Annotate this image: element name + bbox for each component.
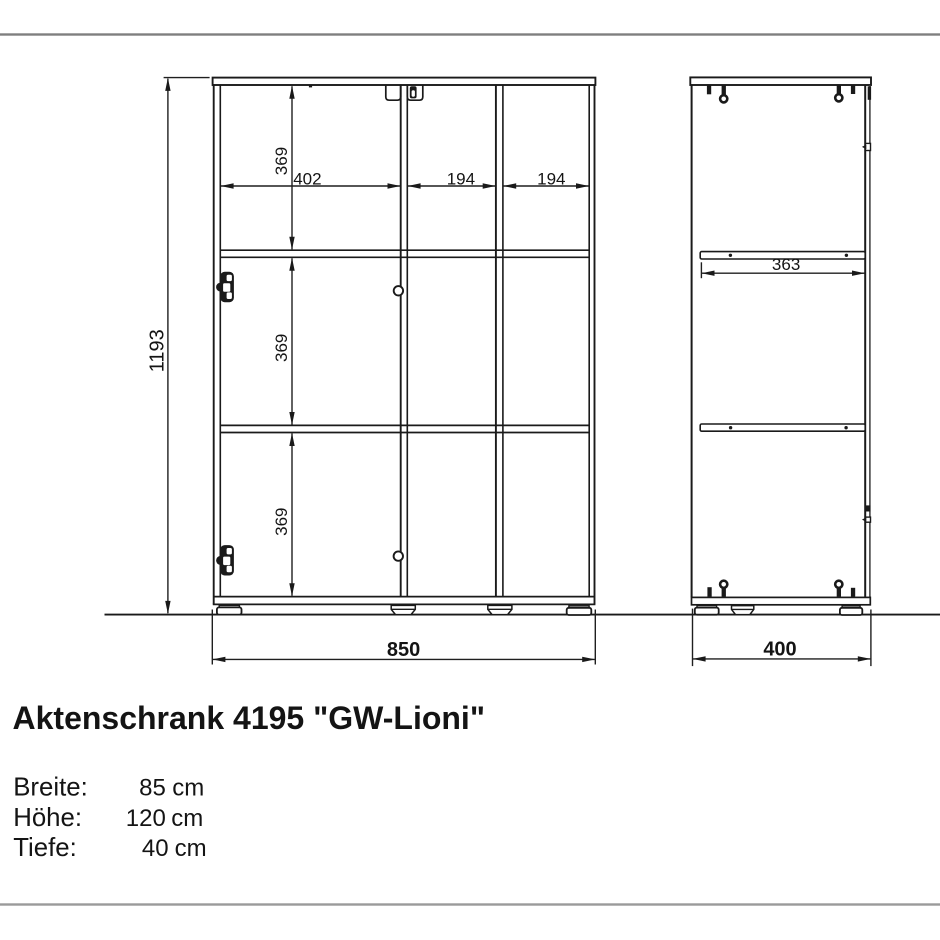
svg-text:Höhe:: Höhe: bbox=[13, 804, 82, 832]
svg-text:369: 369 bbox=[272, 508, 291, 536]
svg-text:cm: cm bbox=[175, 835, 207, 862]
svg-text:120: 120 bbox=[126, 805, 166, 832]
svg-text:402: 402 bbox=[293, 170, 321, 189]
svg-text:400: 400 bbox=[763, 639, 796, 661]
svg-text:194: 194 bbox=[537, 170, 565, 189]
svg-text:40: 40 bbox=[142, 835, 169, 862]
svg-text:369: 369 bbox=[272, 147, 291, 175]
svg-text:Breite:: Breite: bbox=[13, 773, 88, 801]
svg-text:Tiefe:: Tiefe: bbox=[13, 834, 77, 862]
svg-text:194: 194 bbox=[447, 170, 475, 189]
svg-text:85: 85 bbox=[139, 774, 166, 801]
svg-text:369: 369 bbox=[272, 334, 291, 362]
svg-text:cm: cm bbox=[172, 774, 204, 801]
svg-text:Aktenschrank 4195 "GW-Lioni": Aktenschrank 4195 "GW-Lioni" bbox=[13, 700, 485, 736]
svg-text:850: 850 bbox=[387, 639, 420, 661]
svg-text:363: 363 bbox=[772, 255, 800, 274]
svg-text:1193: 1193 bbox=[146, 329, 168, 372]
svg-text:cm: cm bbox=[171, 805, 203, 832]
